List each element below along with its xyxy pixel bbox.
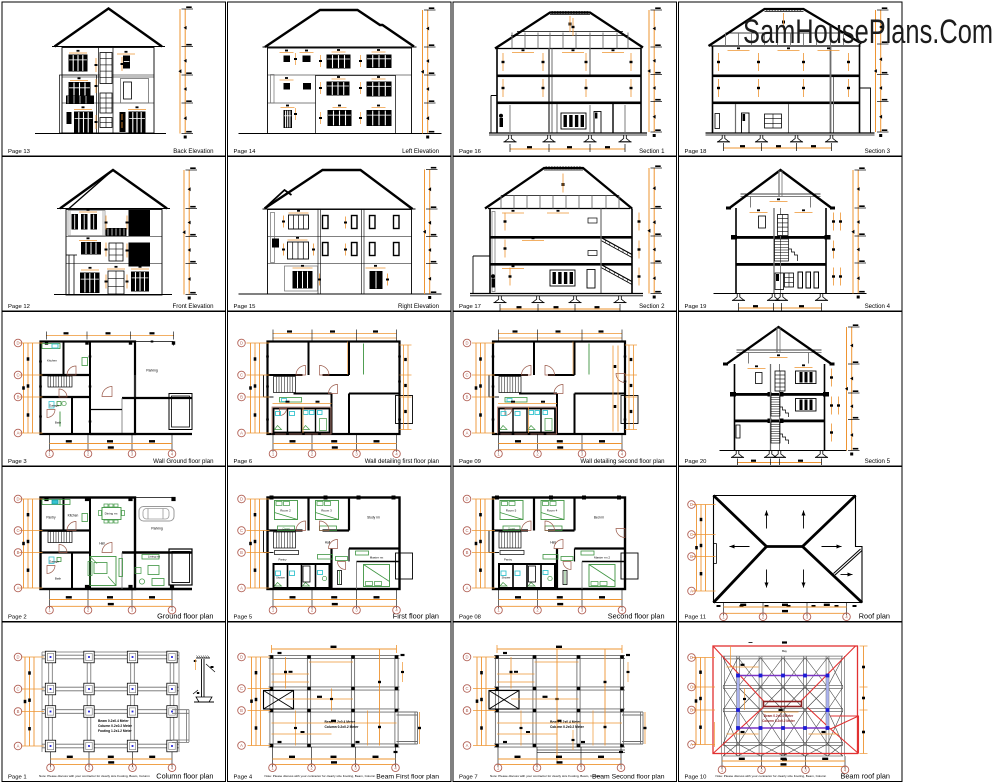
svg-text:A: A [240, 431, 243, 436]
svg-text:Beam 0.2x0.4 Meter: Beam 0.2x0.4 Meter [764, 714, 794, 718]
svg-text:B: B [17, 395, 20, 400]
svg-text:Left Elevation: Left Elevation [402, 148, 439, 155]
svg-text:Hall: Hall [325, 541, 331, 545]
svg-text:Beam Second floor plan: Beam Second floor plan [592, 773, 665, 780]
svg-text:Page 08: Page 08 [459, 614, 482, 620]
svg-text:A: A [466, 431, 469, 436]
svg-text:D: D [16, 341, 19, 346]
svg-text:A: A [466, 743, 469, 748]
svg-text:Shower: Shower [502, 576, 511, 580]
svg-text:Bay: Bay [782, 649, 787, 653]
svg-text:Section 2: Section 2 [639, 303, 665, 310]
svg-text:Wall Ground floor plan: Wall Ground floor plan [153, 458, 213, 465]
svg-text:Column 0.2x0.2 Meter: Column 0.2x0.2 Meter [550, 725, 585, 729]
svg-text:C: C [16, 528, 19, 533]
svg-text:Page 13: Page 13 [8, 149, 31, 155]
svg-text:Room 5: Room 5 [506, 509, 517, 513]
svg-text:Note: Please discuss with your: Note: Please discuss with your contracto… [716, 774, 827, 778]
svg-text:C: C [16, 687, 19, 692]
svg-text:Page 2: Page 2 [8, 614, 27, 620]
svg-text:Bed rm: Bed rm [594, 516, 605, 520]
svg-text:Hall: Hall [99, 542, 105, 546]
svg-text:Page 11: Page 11 [685, 614, 707, 620]
svg-text:A: A [240, 586, 243, 591]
svg-text:C: C [690, 532, 693, 537]
svg-text:Shower: Shower [276, 576, 285, 580]
svg-text:Second floor plan: Second floor plan [608, 611, 665, 620]
svg-text:Page 10: Page 10 [685, 774, 708, 780]
svg-text:C: C [240, 528, 243, 533]
svg-text:D: D [240, 341, 243, 346]
svg-text:Bay: Bay [782, 752, 787, 756]
svg-text:Page 14: Page 14 [234, 149, 257, 155]
svg-text:Section 4: Section 4 [865, 303, 891, 310]
svg-text:Pantry: Pantry [46, 516, 56, 520]
svg-text:Front Elevation: Front Elevation [173, 303, 214, 310]
svg-text:Section 1: Section 1 [639, 148, 665, 155]
svg-text:C: C [690, 685, 693, 690]
svg-text:Note: Please discuss with your: Note: Please discuss with your contracto… [39, 774, 150, 778]
svg-text:Master rm: Master rm [370, 556, 384, 560]
svg-text:B: B [240, 395, 243, 400]
svg-text:C: C [465, 373, 468, 378]
svg-text:C: C [16, 373, 19, 378]
svg-text:Living rm: Living rm [148, 555, 161, 559]
svg-text:D: D [690, 655, 693, 660]
svg-text:Beam 0.2x0.4 Meter: Beam 0.2x0.4 Meter [550, 720, 581, 724]
svg-text:Room 3: Room 3 [321, 509, 332, 513]
svg-text:D: D [16, 497, 19, 502]
svg-text:A: A [17, 586, 20, 591]
svg-text:A: A [17, 431, 20, 436]
svg-text:C: C [240, 373, 243, 378]
svg-text:Master rm 2: Master rm 2 [594, 556, 610, 560]
svg-text:B: B [466, 550, 469, 555]
svg-text:D: D [465, 497, 468, 502]
svg-text:SamHousePlans.Com: SamHousePlans.Com [743, 13, 993, 51]
svg-text:Page 7: Page 7 [459, 774, 478, 780]
svg-text:Page 17: Page 17 [459, 304, 481, 310]
svg-text:Beam 0.2x0.4 Meter: Beam 0.2x0.4 Meter [98, 719, 129, 723]
svg-text:Beam 0.2x0.4 Meter: Beam 0.2x0.4 Meter [325, 720, 356, 724]
svg-text:C: C [465, 528, 468, 533]
svg-text:Footing 1.2x1.2 Meter: Footing 1.2x1.2 Meter [98, 729, 132, 733]
svg-text:Page 1: Page 1 [8, 774, 27, 780]
svg-text:Section 5: Section 5 [865, 458, 891, 465]
svg-text:Page 20: Page 20 [685, 459, 708, 465]
svg-text:A: A [690, 742, 693, 747]
svg-text:B: B [466, 395, 469, 400]
svg-text:Closet: Closet [282, 527, 290, 531]
svg-text:Page 15: Page 15 [234, 304, 257, 310]
svg-text:Kitchen: Kitchen [68, 514, 79, 518]
svg-text:Back Elevation: Back Elevation [173, 148, 213, 155]
svg-text:Column 0.2x0.2 Meter: Column 0.2x0.2 Meter [762, 719, 796, 723]
svg-text:Beam First floor plan: Beam First floor plan [376, 773, 439, 780]
svg-text:Dining rm: Dining rm [105, 512, 118, 516]
svg-text:B: B [690, 554, 693, 559]
svg-text:Pantry: Pantry [278, 558, 287, 562]
svg-text:Roof plan: Roof plan [859, 611, 890, 620]
svg-text:Section 3: Section 3 [865, 148, 891, 155]
svg-text:D: D [240, 655, 243, 660]
svg-text:Page 5: Page 5 [234, 614, 253, 620]
svg-text:Page 3: Page 3 [8, 459, 27, 465]
svg-text:Page 16: Page 16 [459, 149, 482, 155]
svg-text:Page 6: Page 6 [234, 459, 253, 465]
svg-text:B: B [690, 708, 693, 713]
svg-text:C: C [465, 686, 468, 691]
svg-text:Page 12: Page 12 [8, 304, 30, 310]
svg-text:Note: Please discuss with your: Note: Please discuss with your contracto… [490, 774, 601, 778]
svg-text:C: C [240, 686, 243, 691]
svg-text:Closet: Closet [508, 527, 516, 531]
svg-text:A: A [240, 743, 243, 748]
svg-text:A: A [17, 744, 20, 749]
svg-text:Page 18: Page 18 [685, 149, 708, 155]
svg-text:Bath: Bath [55, 577, 62, 581]
svg-text:B: B [466, 708, 469, 713]
svg-text:Parking: Parking [151, 527, 163, 531]
svg-text:D: D [16, 655, 19, 660]
svg-text:Note: Please discuss with your: Note: Please discuss with your contracto… [265, 774, 376, 778]
svg-text:Page 19: Page 19 [685, 304, 707, 310]
svg-text:B: B [17, 550, 20, 555]
svg-text:Pantry: Pantry [504, 558, 513, 562]
svg-text:A: A [466, 586, 469, 591]
svg-text:D: D [465, 655, 468, 660]
svg-text:Garage: Garage [49, 560, 59, 564]
svg-text:Bath: Bath [55, 421, 62, 425]
svg-text:Wall detailing second floor pl: Wall detailing second floor plan [580, 458, 664, 465]
svg-text:Column 0.2x0.2 Meter: Column 0.2x0.2 Meter [98, 724, 133, 728]
svg-text:D: D [690, 502, 693, 507]
svg-text:B: B [240, 708, 243, 713]
svg-text:Page 4: Page 4 [234, 774, 253, 780]
svg-text:D: D [465, 341, 468, 346]
svg-text:Garage: Garage [49, 404, 59, 408]
svg-text:Room 2: Room 2 [280, 509, 291, 513]
svg-text:Ground floor plan: Ground floor plan [157, 611, 213, 620]
svg-text:Column 0.2x0.2 Meter: Column 0.2x0.2 Meter [325, 725, 360, 729]
svg-text:Kitchen: Kitchen [47, 359, 57, 363]
svg-text:Page 09: Page 09 [459, 459, 481, 465]
svg-text:B: B [240, 550, 243, 555]
svg-text:Column floor plan: Column floor plan [156, 771, 213, 780]
svg-text:Wall detailing first floor pla: Wall detailing first floor plan [365, 458, 439, 465]
svg-text:A: A [690, 589, 693, 594]
svg-text:Parking: Parking [146, 369, 158, 373]
svg-text:Right Elevation: Right Elevation [398, 303, 439, 310]
svg-text:Study rm: Study rm [367, 516, 380, 520]
svg-text:B: B [17, 709, 20, 714]
svg-text:Hall: Hall [550, 541, 556, 545]
svg-text:Room 4: Room 4 [547, 509, 558, 513]
svg-text:D: D [240, 497, 243, 502]
